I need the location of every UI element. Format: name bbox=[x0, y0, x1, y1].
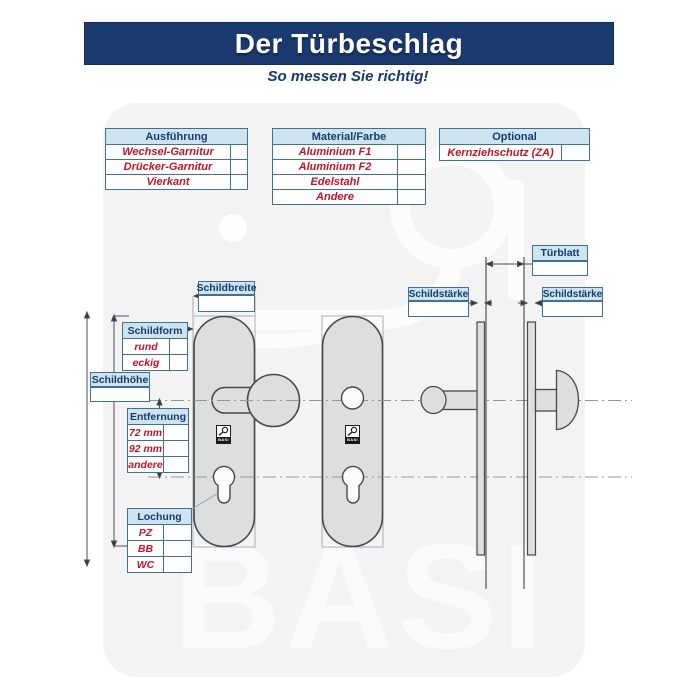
page-subtitle: So messen Sie richtig! bbox=[84, 67, 612, 85]
option-label: Edelstahl bbox=[273, 175, 397, 189]
schildhoehe-label: Schildhöhe bbox=[90, 372, 150, 387]
table-row: Andere bbox=[273, 190, 425, 204]
entfernung-checkbox-0[interactable] bbox=[163, 425, 188, 440]
plate-side-left bbox=[477, 322, 485, 555]
table-ausfuehrung: Ausführung Wechsel-Garnitur Drücker-Garn… bbox=[105, 128, 248, 190]
page-title: Der Türbeschlag bbox=[235, 28, 463, 60]
table-row: Wechsel-Garnitur bbox=[106, 145, 247, 160]
basi-plate-logo-right: BASI bbox=[345, 425, 360, 444]
option-label: Aluminium F2 bbox=[273, 160, 397, 174]
handle-hole bbox=[342, 387, 364, 409]
lochung-checkbox-0[interactable] bbox=[163, 525, 191, 540]
table-header: Optional bbox=[440, 129, 589, 145]
option-label: eckig bbox=[123, 355, 169, 370]
ausfuehrung-checkbox-0[interactable] bbox=[230, 145, 247, 159]
lochung-checkbox-1[interactable] bbox=[163, 541, 191, 556]
material-checkbox-1[interactable] bbox=[397, 160, 425, 174]
schildform-checkbox-0[interactable] bbox=[169, 339, 187, 354]
table-row: rund bbox=[123, 339, 187, 355]
knob-stem-side bbox=[536, 390, 558, 412]
table-row: WC bbox=[128, 557, 191, 572]
diagram-art bbox=[0, 0, 696, 696]
material-checkbox-0[interactable] bbox=[397, 145, 425, 159]
plate-side-right bbox=[528, 322, 536, 555]
title-banner: Der Türbeschlag bbox=[84, 22, 614, 65]
knob-side bbox=[557, 371, 579, 430]
table-entfernung: Entfernung 72 mm 92 mm andere bbox=[127, 408, 189, 473]
table-row: 92 mm bbox=[128, 441, 188, 457]
basi-logo-text: BASI bbox=[346, 437, 359, 443]
schildstaerke-right-input-box[interactable] bbox=[542, 301, 603, 317]
material-checkbox-3[interactable] bbox=[397, 190, 425, 204]
table-header: Ausführung bbox=[106, 129, 247, 145]
option-label: Drücker-Garnitur bbox=[106, 160, 230, 174]
option-label: BB bbox=[128, 541, 163, 556]
page: BASI bbox=[0, 0, 696, 696]
ausfuehrung-checkbox-2[interactable] bbox=[230, 175, 247, 189]
option-label: 92 mm bbox=[128, 441, 163, 456]
table-optional: Optional Kernziehschutz (ZA) bbox=[439, 128, 590, 161]
table-material: Material/Farbe Aluminium F1 Aluminium F2… bbox=[272, 128, 426, 205]
basi-logo-key-icon bbox=[217, 426, 230, 437]
option-label: Andere bbox=[273, 190, 397, 204]
option-label: Aluminium F1 bbox=[273, 145, 397, 159]
lever-cap bbox=[421, 387, 446, 414]
schildform-checkbox-1[interactable] bbox=[169, 355, 187, 370]
table-row: Kernziehschutz (ZA) bbox=[440, 145, 589, 160]
schildbreite-label: Schildbreite bbox=[198, 281, 255, 295]
table-header: Lochung bbox=[128, 509, 191, 525]
basi-plate-logo-left: BASI bbox=[216, 425, 231, 444]
optional-checkbox-0[interactable] bbox=[561, 145, 589, 160]
table-row: Aluminium F1 bbox=[273, 145, 425, 160]
schildbreite-input-box[interactable] bbox=[198, 295, 255, 312]
option-label: Vierkant bbox=[106, 175, 230, 189]
option-label: Kernziehschutz (ZA) bbox=[440, 145, 561, 160]
option-label: andere bbox=[128, 457, 163, 472]
table-row: 72 mm bbox=[128, 425, 188, 441]
option-label: Wechsel-Garnitur bbox=[106, 145, 230, 159]
schildhoehe-input-box[interactable] bbox=[90, 387, 150, 402]
basi-logo-key-icon bbox=[346, 426, 359, 437]
schildstaerke-left-label: Schildstärke bbox=[408, 287, 469, 301]
material-checkbox-2[interactable] bbox=[397, 175, 425, 189]
table-row: andere bbox=[128, 457, 188, 472]
tuerblatt-label: Türblatt bbox=[532, 245, 588, 261]
option-label: 72 mm bbox=[128, 425, 163, 440]
table-lochung: Lochung PZ BB WC bbox=[127, 508, 192, 573]
schildstaerke-left-input-box[interactable] bbox=[408, 301, 469, 317]
table-row: Vierkant bbox=[106, 175, 247, 189]
tuerblatt-input-box[interactable] bbox=[532, 261, 588, 276]
option-label: PZ bbox=[128, 525, 163, 540]
table-row: BB bbox=[128, 541, 191, 557]
option-label: WC bbox=[128, 557, 163, 572]
table-row: PZ bbox=[128, 525, 191, 541]
table-header: Entfernung bbox=[128, 409, 188, 425]
basi-logo-text: BASI bbox=[217, 437, 230, 443]
table-row: Aluminium F2 bbox=[273, 160, 425, 175]
table-row: eckig bbox=[123, 355, 187, 370]
entfernung-checkbox-1[interactable] bbox=[163, 441, 188, 456]
table-schildform: Schildform rund eckig bbox=[122, 322, 188, 371]
table-header: Material/Farbe bbox=[273, 129, 425, 145]
table-row: Drücker-Garnitur bbox=[106, 160, 247, 175]
ausfuehrung-checkbox-1[interactable] bbox=[230, 160, 247, 174]
entfernung-checkbox-2[interactable] bbox=[163, 457, 188, 472]
schildstaerke-right-label: Schildstärke bbox=[542, 287, 603, 301]
lochung-checkbox-2[interactable] bbox=[163, 557, 191, 572]
table-row: Edelstahl bbox=[273, 175, 425, 190]
table-header: Schildform bbox=[123, 323, 187, 339]
option-label: rund bbox=[123, 339, 169, 354]
